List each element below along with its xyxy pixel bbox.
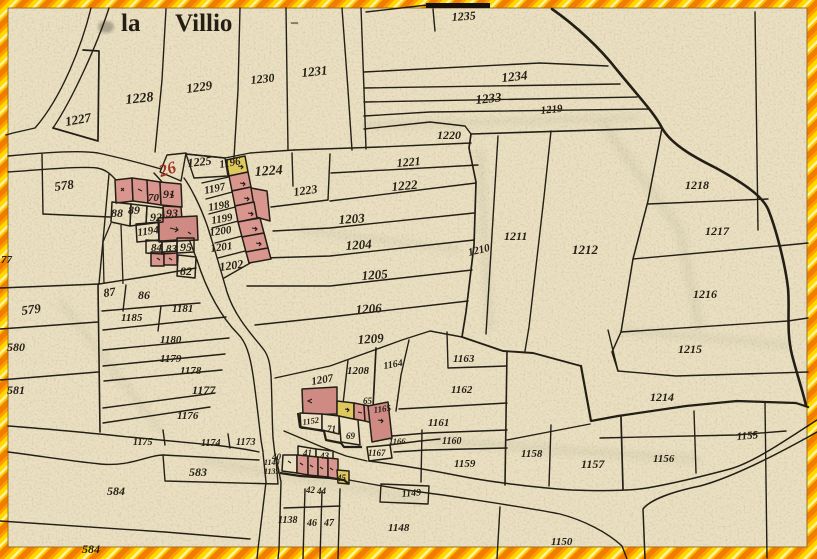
svg-text:92: 92 [150, 210, 162, 224]
svg-text:86: 86 [138, 288, 150, 302]
svg-text:1219: 1219 [540, 103, 564, 117]
svg-text:1206: 1206 [355, 300, 382, 317]
svg-text:1149: 1149 [401, 487, 421, 500]
svg-text:1221: 1221 [396, 154, 421, 170]
svg-text:1230: 1230 [250, 71, 275, 87]
svg-text:1163: 1163 [453, 353, 475, 365]
svg-text:580: 580 [7, 340, 25, 354]
svg-text:1159: 1159 [454, 458, 476, 470]
svg-text:1176: 1176 [177, 410, 199, 422]
svg-text:45: 45 [336, 473, 347, 483]
svg-text:84: 84 [151, 242, 163, 254]
svg-text:1231: 1231 [301, 62, 328, 80]
svg-text:46: 46 [306, 518, 317, 529]
svg-text:583: 583 [189, 465, 207, 479]
svg-text:1140: 1140 [264, 458, 280, 467]
svg-text:1150: 1150 [551, 536, 573, 548]
svg-text:1214: 1214 [650, 390, 674, 404]
svg-text:1185: 1185 [121, 312, 143, 324]
svg-text:83: 83 [166, 243, 178, 255]
svg-text:71: 71 [327, 424, 336, 434]
svg-text:1167: 1167 [368, 448, 386, 458]
svg-text:1138: 1138 [278, 515, 297, 526]
svg-text:1233: 1233 [475, 89, 503, 107]
svg-text:1225: 1225 [187, 154, 212, 170]
svg-text:1156: 1156 [653, 453, 675, 465]
svg-text:1212: 1212 [572, 242, 599, 257]
svg-text:1228: 1228 [125, 90, 154, 108]
svg-text:42: 42 [305, 485, 316, 495]
svg-text:1175: 1175 [133, 437, 152, 448]
svg-text:1174: 1174 [201, 438, 220, 449]
svg-text:584: 584 [107, 484, 125, 498]
svg-text:1166: 1166 [389, 436, 406, 446]
svg-text:69: 69 [346, 431, 356, 441]
svg-text:43: 43 [319, 451, 330, 461]
svg-text:1173: 1173 [236, 437, 255, 448]
svg-text:1218: 1218 [685, 178, 709, 192]
svg-text:584: 584 [82, 542, 100, 556]
svg-text:1208: 1208 [347, 365, 370, 377]
svg-text:1203: 1203 [338, 210, 365, 227]
svg-text:91: 91 [163, 187, 175, 201]
svg-text:1161: 1161 [428, 417, 449, 429]
svg-text:47: 47 [323, 518, 335, 529]
svg-text:89: 89 [128, 203, 140, 217]
svg-text:1222: 1222 [391, 177, 419, 194]
svg-text:1160: 1160 [442, 436, 461, 447]
svg-text:1180: 1180 [160, 334, 182, 346]
svg-text:88: 88 [111, 206, 123, 220]
svg-text:1139: 1139 [264, 467, 280, 476]
svg-text:1148: 1148 [388, 522, 410, 534]
svg-text:82: 82 [180, 264, 192, 278]
svg-text:579: 579 [20, 300, 42, 318]
svg-text:1234: 1234 [501, 67, 529, 85]
svg-text:1220: 1220 [437, 128, 461, 142]
svg-text:1216: 1216 [693, 287, 717, 301]
svg-text:1158: 1158 [521, 448, 543, 460]
svg-text:581: 581 [7, 383, 25, 397]
svg-text:65: 65 [363, 396, 373, 406]
svg-text:1205: 1205 [361, 266, 388, 283]
svg-text:1178: 1178 [180, 365, 202, 377]
svg-text:1217: 1217 [705, 224, 730, 238]
svg-text:1179: 1179 [160, 353, 182, 365]
svg-text:1204: 1204 [345, 236, 372, 253]
svg-text:1181: 1181 [172, 303, 193, 315]
svg-text:95: 95 [180, 240, 192, 254]
svg-text:1224: 1224 [254, 163, 283, 180]
svg-text:1235: 1235 [451, 8, 476, 24]
svg-text:1157: 1157 [581, 457, 605, 471]
svg-text:93: 93 [166, 206, 178, 220]
svg-text:1155: 1155 [736, 429, 759, 443]
svg-text:578: 578 [53, 176, 75, 194]
svg-text:Villio: Villio [175, 10, 232, 37]
svg-text:70: 70 [148, 192, 160, 204]
svg-text:1177: 1177 [192, 383, 216, 397]
svg-text:–: – [290, 15, 299, 30]
svg-text:la: la [121, 10, 141, 37]
svg-text:1215: 1215 [678, 342, 702, 356]
svg-text:77: 77 [1, 254, 13, 266]
svg-text:1211: 1211 [504, 229, 527, 243]
svg-text:1162: 1162 [451, 384, 473, 396]
svg-text:1209: 1209 [357, 330, 384, 347]
svg-text:41: 41 [302, 448, 312, 458]
svg-text:44: 44 [316, 486, 327, 496]
